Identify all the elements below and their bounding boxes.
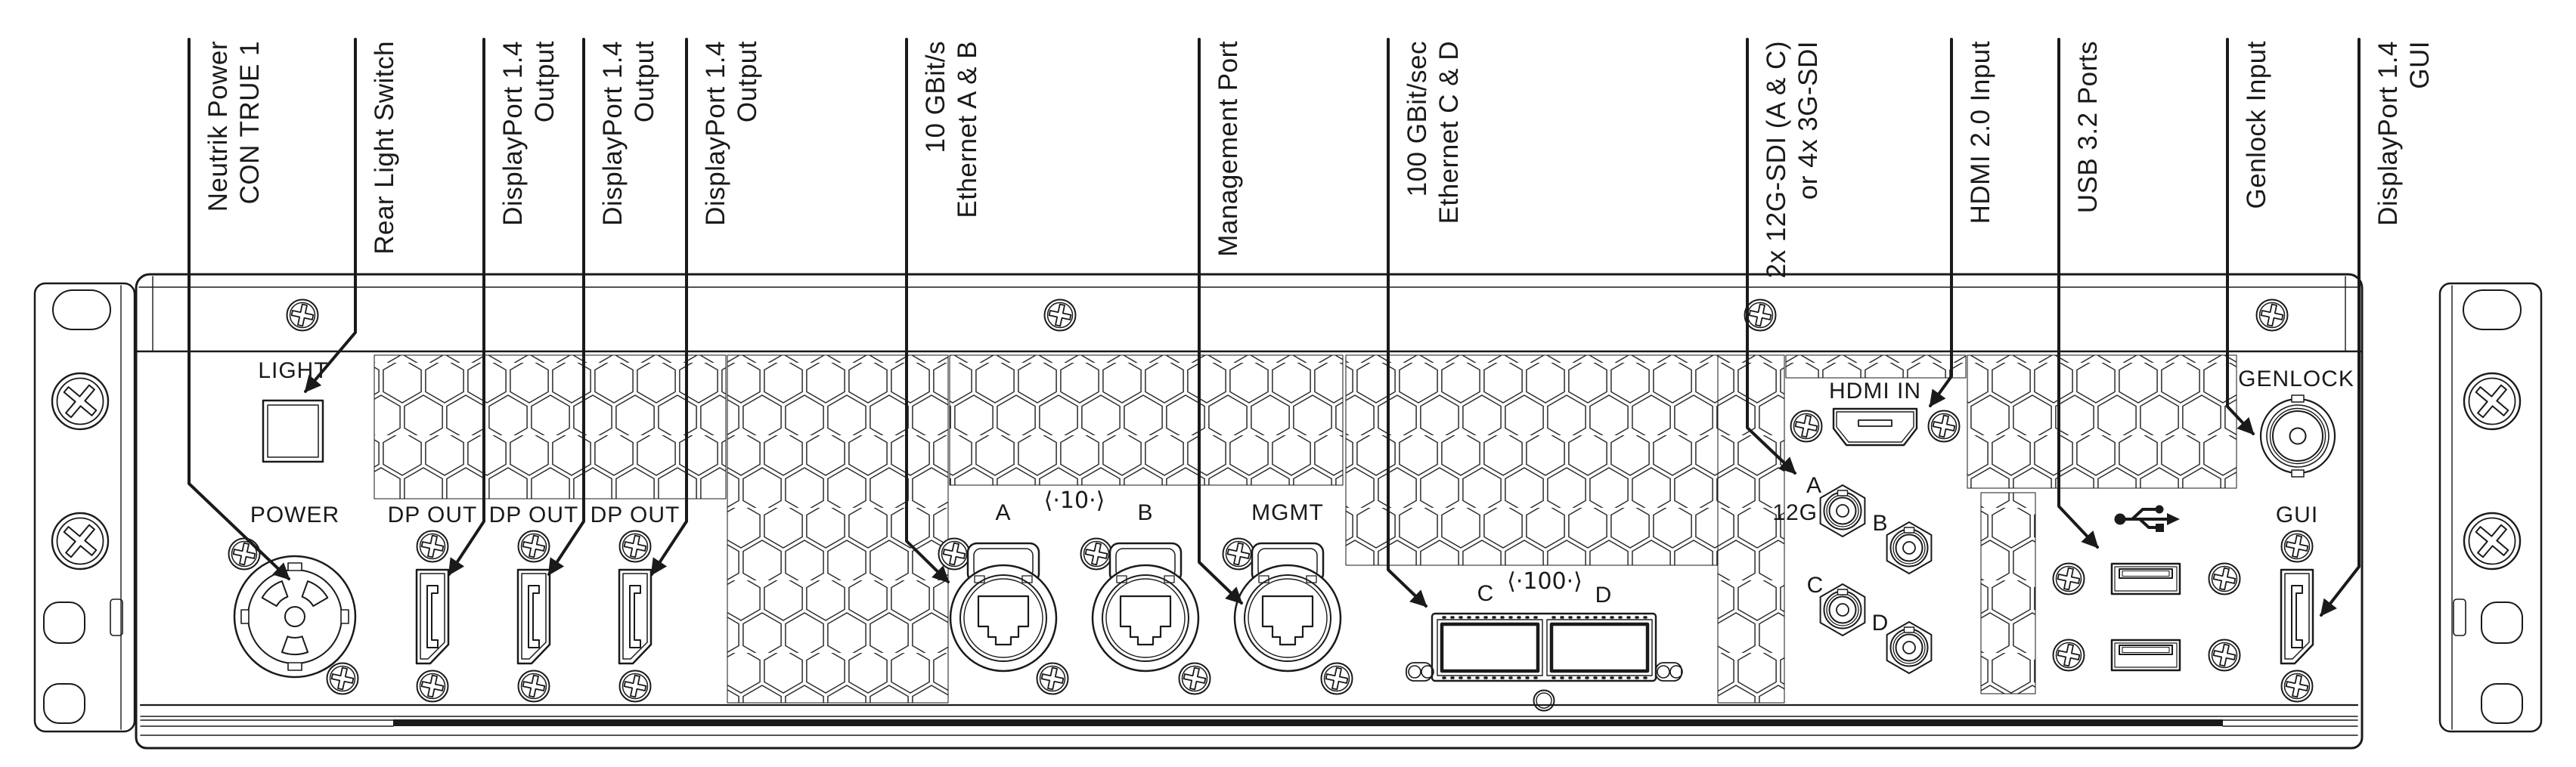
screw-icon	[1791, 411, 1822, 442]
qsfp-speed-label: ⟨·100·⟩	[1507, 568, 1582, 595]
screw-icon	[1037, 663, 1068, 694]
screw-icon	[2054, 564, 2085, 595]
callout-label: Rear Light Switch	[370, 41, 399, 255]
vent-patch	[1967, 355, 2237, 488]
callout-label: Management Port	[1214, 41, 1243, 257]
screw-icon	[2209, 564, 2240, 595]
eth-b-label: B	[1137, 500, 1153, 525]
displayport-connector	[417, 570, 448, 663]
callout-label: GUI	[2405, 41, 2435, 89]
screw-icon	[1745, 300, 1776, 331]
gui-label: GUI	[2276, 503, 2318, 527]
mgmt-label: MGMT	[1251, 500, 1324, 525]
vent-patch	[1346, 355, 1718, 565]
screw-icon	[2054, 640, 2085, 671]
sdi-d-label: D	[1872, 611, 1889, 636]
screw-icon	[327, 663, 358, 694]
screw-icon	[2282, 531, 2313, 562]
screw-icon	[1081, 539, 1112, 570]
sdi-a-label: A	[1806, 473, 1822, 498]
screw-icon	[1929, 411, 1960, 442]
eth-a-label: A	[995, 500, 1011, 525]
genlock-label: GENLOCK	[2238, 366, 2354, 391]
callout-label: Ethernet C & D	[1434, 41, 1464, 224]
screw-icon	[2257, 300, 2288, 331]
vent-patch	[1718, 355, 1784, 703]
callout-label: 100 GBit/sec	[1403, 41, 1432, 196]
callout-label: DisplayPort 1.4	[2373, 41, 2403, 226]
light-switch: LIGHT	[258, 358, 328, 462]
screw-icon	[1322, 663, 1353, 694]
dp-out-label: DP OUT	[388, 503, 478, 527]
usb-port-1	[2112, 564, 2180, 594]
callout-label: DisplayPort 1.4	[498, 41, 528, 226]
dp-out-label: DP OUT	[591, 503, 680, 527]
displayport-connector	[2281, 570, 2313, 663]
callout-label: Genlock Input	[2242, 41, 2271, 209]
screw-icon	[1045, 300, 1076, 331]
screw-icon	[1180, 663, 1211, 694]
screw-icon	[417, 671, 448, 702]
callout-label: or 4x 3G-SDI	[1793, 41, 1823, 199]
callout-label: Output	[530, 41, 560, 122]
screw-icon	[2464, 373, 2520, 429]
rack-ear-left	[35, 283, 135, 731]
callout-label: Output	[733, 41, 762, 122]
screw-icon	[52, 513, 108, 569]
screw-icon	[519, 531, 550, 562]
light-label: LIGHT	[258, 358, 328, 383]
screw-icon	[2464, 513, 2520, 569]
callout-label: USB 3.2 Ports	[2073, 41, 2103, 213]
screw-icon	[287, 300, 318, 331]
vent-patch	[1786, 355, 1966, 378]
screw-icon	[1223, 539, 1254, 570]
callout-label: CON TRUE 1	[235, 41, 265, 204]
qsfp-d-label: D	[1595, 583, 1613, 608]
callout-label: 10 GBit/s	[921, 41, 950, 153]
vent-patch	[950, 355, 1343, 485]
sdi-b-label: B	[1872, 511, 1888, 536]
sdi-rate-label: 12G	[1772, 500, 1818, 525]
power-label: POWER	[250, 503, 339, 527]
usb-port-2	[2112, 640, 2180, 670]
callout-label: DisplayPort 1.4	[701, 41, 730, 226]
screw-icon	[417, 531, 448, 562]
callout-label: Ethernet A & B	[953, 41, 982, 218]
callout-label: Output	[630, 41, 659, 122]
hdmi-label: HDMI IN	[1829, 379, 1921, 404]
vent-patch	[374, 355, 726, 499]
qsfp-c-label: C	[1477, 581, 1495, 606]
callout-label: HDMI 2.0 Input	[1966, 41, 1995, 224]
rear-panel-diagram: LIGHT POWER DP OUT	[0, 0, 2576, 767]
callout-label: DisplayPort 1.4	[598, 41, 628, 226]
displayport-connector	[619, 570, 651, 663]
vent-patch	[727, 355, 948, 703]
callout-label: Neutrik Power	[203, 41, 233, 212]
dp-out-label: DP OUT	[489, 503, 579, 527]
screw-icon	[519, 671, 550, 702]
screw-icon	[620, 671, 651, 702]
sdi-c-label: C	[1807, 573, 1824, 598]
screw-icon	[939, 539, 970, 570]
rack-ear-right	[2440, 283, 2541, 731]
screw-icon	[620, 531, 651, 562]
screw-icon	[52, 373, 108, 429]
screw-icon	[229, 539, 260, 570]
screw-icon	[2209, 640, 2240, 671]
eth-speed-label: ⟨·10·⟩	[1044, 487, 1105, 514]
displayport-connector	[518, 570, 550, 663]
callout-label: 2x 12G-SDI (A & C)	[1762, 41, 1791, 278]
screw-icon	[2282, 671, 2313, 702]
vent-patch	[1981, 493, 2035, 694]
